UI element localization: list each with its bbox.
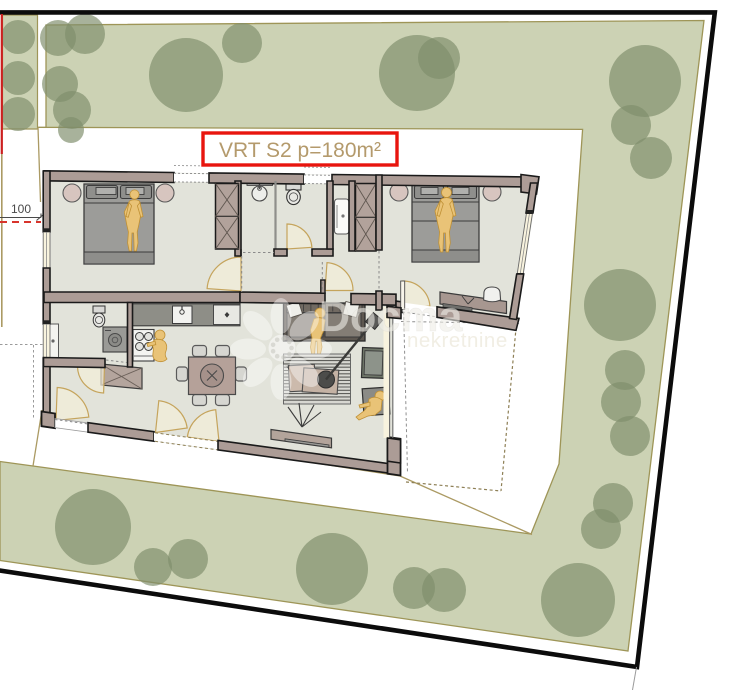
svg-text:nekretnine: nekretnine	[407, 329, 508, 352]
svg-text:VRT S2 p=180m²: VRT S2 p=180m²	[219, 139, 381, 162]
svg-text:100: 100	[11, 202, 31, 216]
